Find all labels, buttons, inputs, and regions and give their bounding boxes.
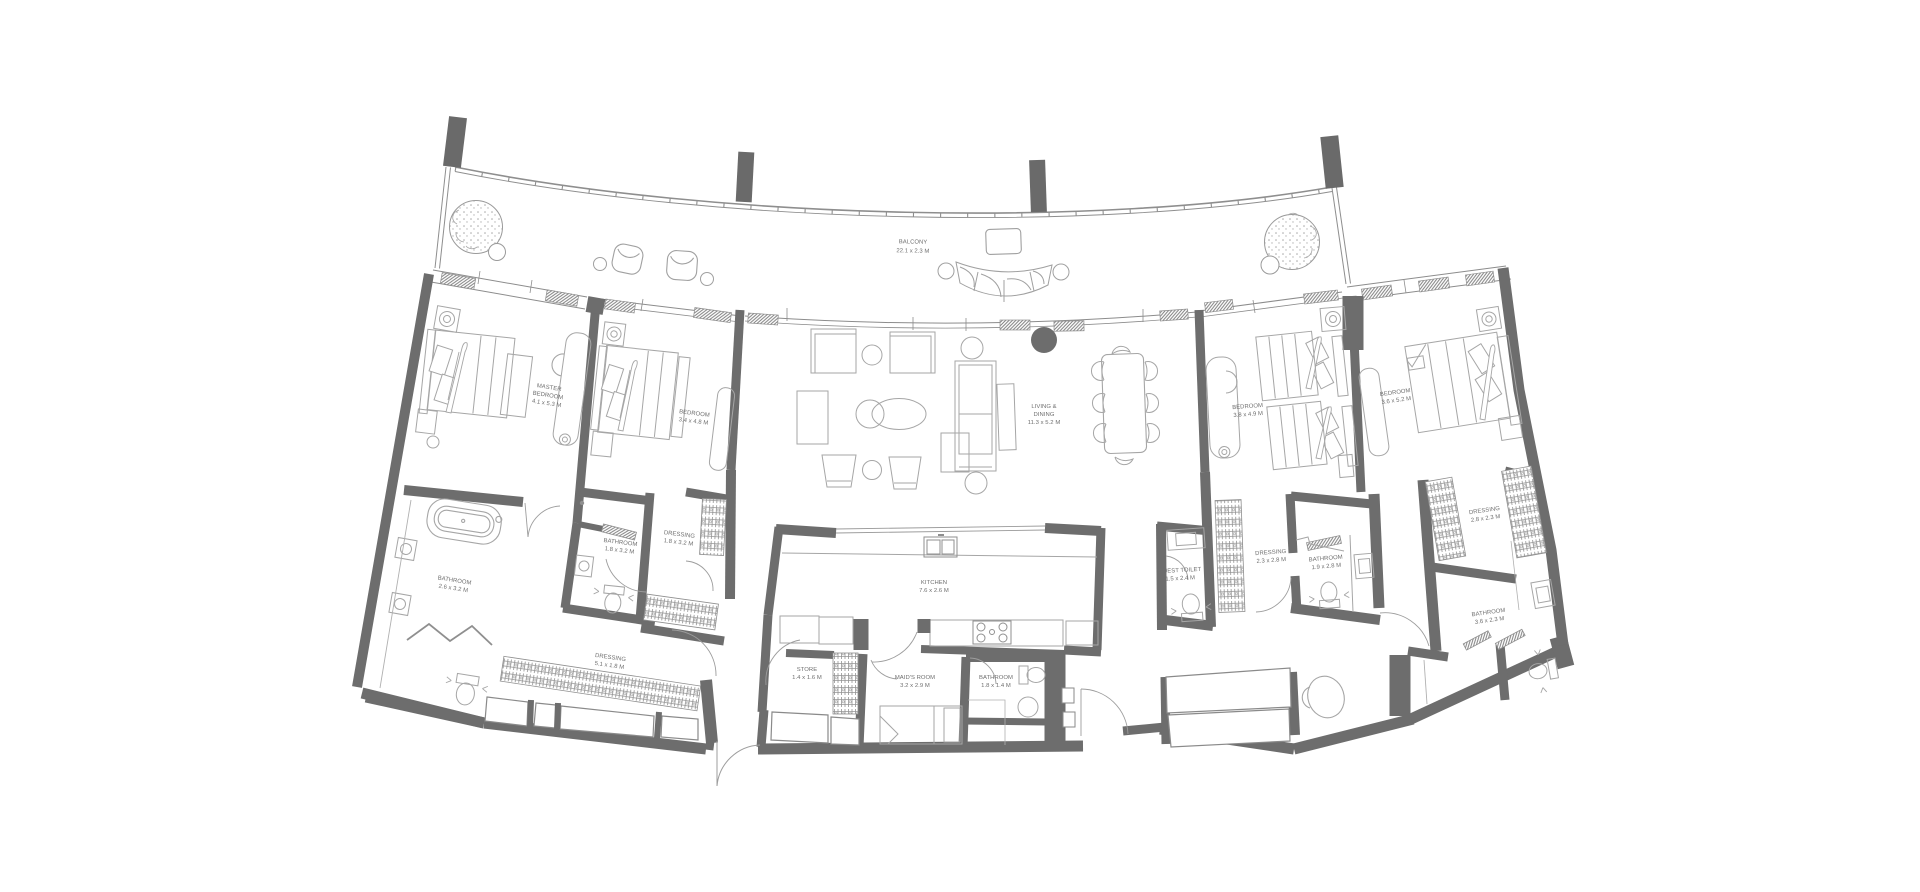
svg-text:LIVING &: LIVING & [1031, 404, 1056, 410]
svg-text:3.2 x 2.9 M: 3.2 x 2.9 M [900, 683, 930, 689]
svg-text:7.6 x 2.6 M: 7.6 x 2.6 M [919, 588, 949, 594]
svg-text:3.6 x 2.3 M: 3.6 x 2.3 M [1475, 616, 1505, 626]
svg-text:BEDROOM: BEDROOM [1232, 403, 1263, 411]
svg-text:BALCONY: BALCONY [899, 239, 928, 245]
svg-text:GUEST TOILET: GUEST TOILET [1158, 567, 1201, 575]
svg-text:DRESSING: DRESSING [1255, 549, 1287, 557]
svg-text:MAID'S ROOM: MAID'S ROOM [895, 675, 935, 681]
svg-text:5.1 x 1.8 M: 5.1 x 1.8 M [594, 661, 624, 671]
svg-text:3.6 x 5.2 M: 3.6 x 5.2 M [1381, 396, 1411, 406]
svg-text:2.8 x 2.3 M: 2.8 x 2.3 M [1471, 514, 1501, 524]
svg-text:STORE: STORE [797, 667, 817, 673]
svg-text:BATHROOM: BATHROOM [979, 675, 1013, 681]
svg-text:DINING: DINING [1034, 412, 1055, 418]
svg-text:11.3 x 5.2 M: 11.3 x 5.2 M [1028, 420, 1061, 426]
svg-text:1.8 x 1.4 M: 1.8 x 1.4 M [981, 683, 1011, 689]
svg-text:KITCHEN: KITCHEN [921, 580, 947, 586]
svg-text:1.4 x 1.6 M: 1.4 x 1.6 M [792, 675, 822, 681]
svg-text:3.8 x 4.9 M: 3.8 x 4.9 M [1233, 411, 1263, 419]
svg-text:1.8 x 3.2 M: 1.8 x 3.2 M [604, 546, 634, 556]
svg-text:1.9 x 2.8 M: 1.9 x 2.8 M [1311, 563, 1341, 572]
svg-text:2.3 x 2.8 M: 2.3 x 2.8 M [1256, 557, 1286, 565]
svg-text:1.5 x 2.4 M: 1.5 x 2.4 M [1165, 575, 1195, 583]
svg-text:22.1 x 2.3 M: 22.1 x 2.3 M [896, 248, 929, 255]
svg-text:1.8 x 3.2 M: 1.8 x 3.2 M [663, 538, 693, 548]
